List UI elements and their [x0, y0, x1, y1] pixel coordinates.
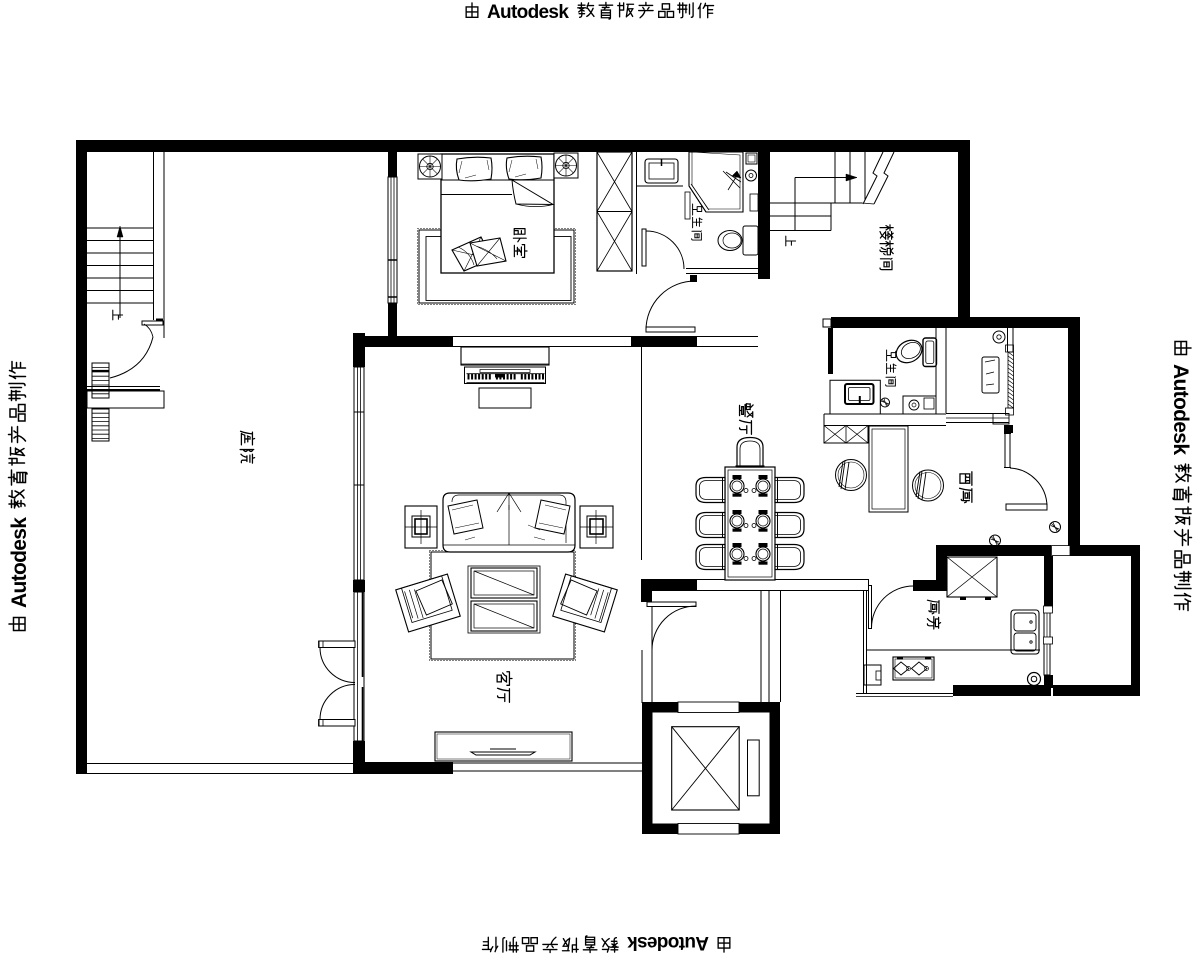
svg-text:Autodesk: Autodesk: [1169, 364, 1192, 455]
svg-text:Autodesk: Autodesk: [8, 517, 31, 608]
svg-text:Autodesk: Autodesk: [627, 932, 709, 953]
svg-text:Autodesk: Autodesk: [487, 2, 569, 23]
